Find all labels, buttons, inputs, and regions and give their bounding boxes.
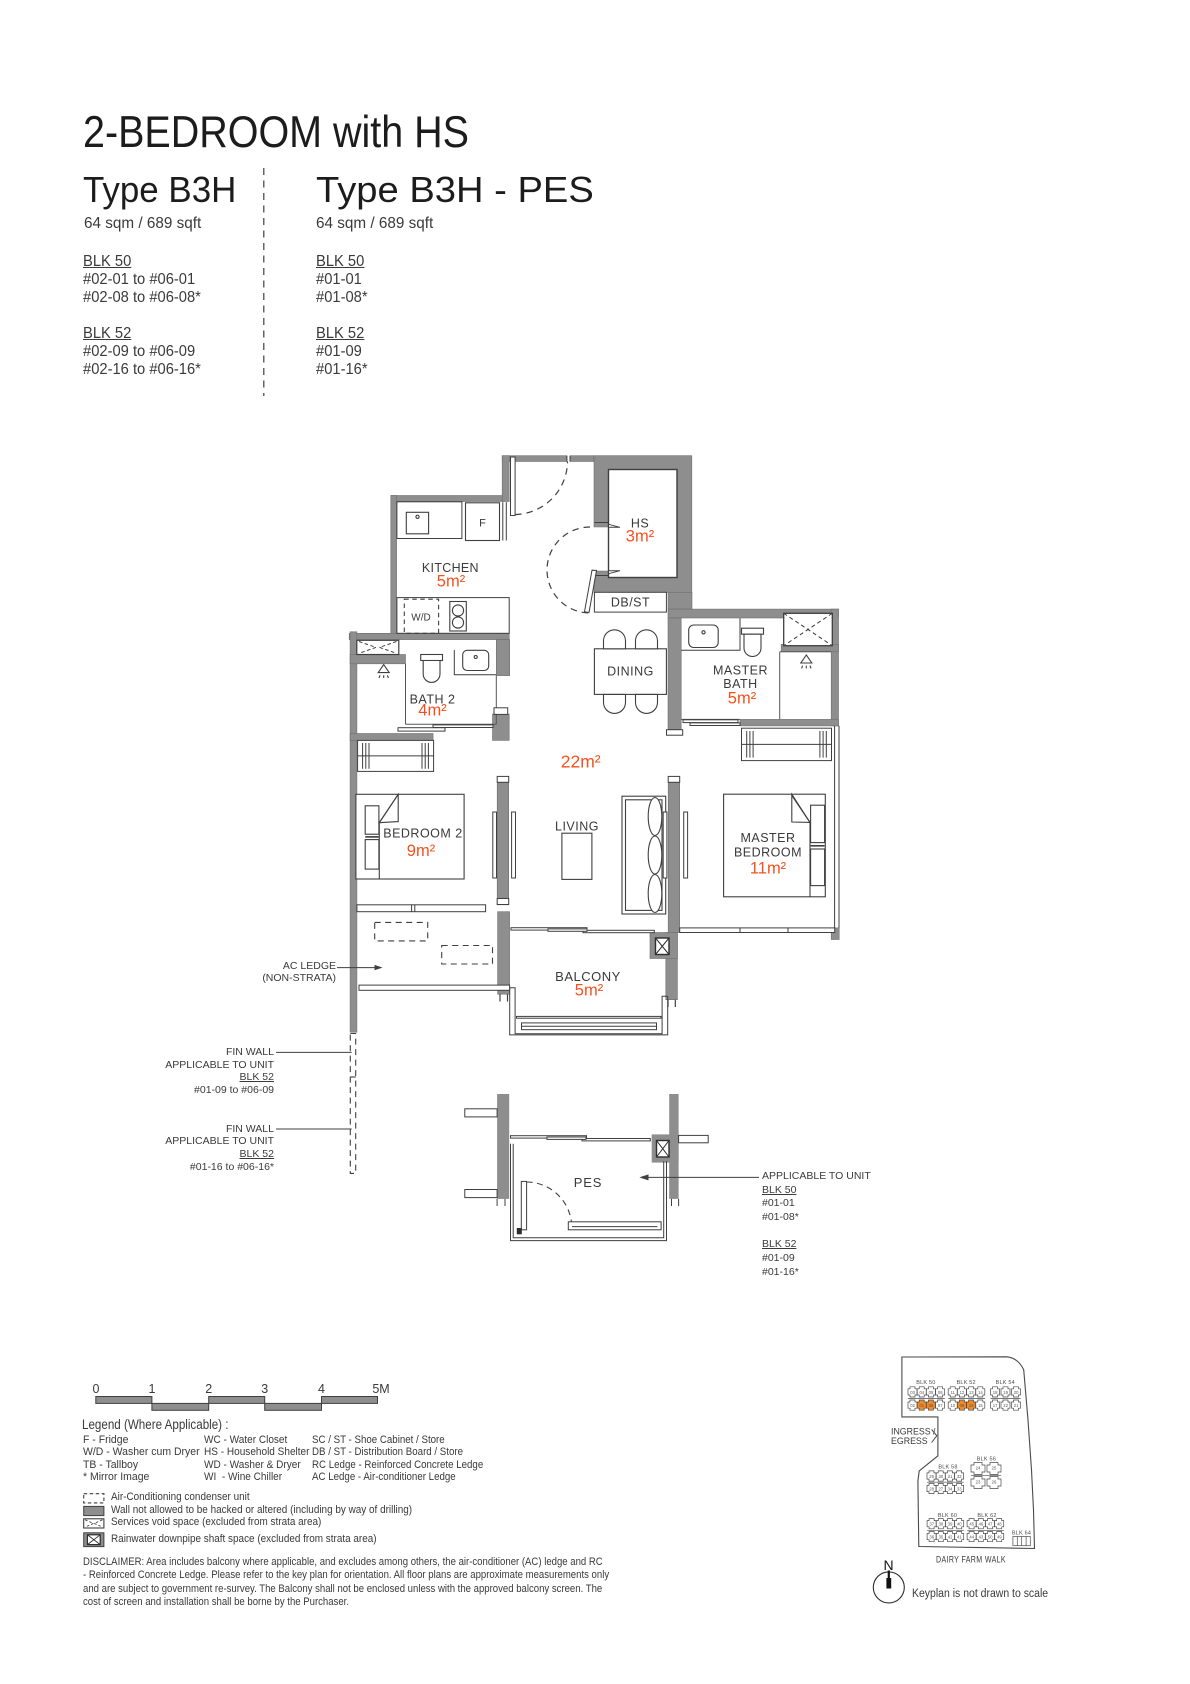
svg-text:3m²: 3m² — [626, 528, 655, 546]
svg-text:BLK 62: BLK 62 — [977, 1513, 996, 1519]
svg-text:BLK 52: BLK 52 — [957, 1380, 976, 1386]
svg-text:14: 14 — [978, 1390, 983, 1395]
svg-text:5m²: 5m² — [728, 690, 757, 708]
svg-text:22m²: 22m² — [561, 752, 601, 772]
svg-text:1: 1 — [149, 1382, 156, 1396]
svg-text:37: 37 — [929, 1522, 934, 1527]
svg-text:5m²: 5m² — [575, 982, 604, 1000]
svg-text:07: 07 — [938, 1403, 943, 1408]
svg-text:5M: 5M — [372, 1382, 389, 1396]
svg-text:15: 15 — [978, 1403, 983, 1408]
svg-text:EGRESS: EGRESS — [891, 1436, 928, 1446]
svg-text:35: 35 — [939, 1535, 944, 1540]
svg-text:LIVING: LIVING — [555, 820, 599, 834]
svg-text:09: 09 — [960, 1403, 965, 1408]
svg-text:2: 2 — [205, 1382, 212, 1396]
svg-text:49: 49 — [997, 1535, 1002, 1540]
svg-text:34: 34 — [948, 1486, 953, 1491]
svg-text:BLK 54: BLK 54 — [996, 1380, 1015, 1386]
svg-text:DINING: DINING — [607, 665, 654, 679]
svg-text:04: 04 — [919, 1390, 924, 1395]
svg-text:18: 18 — [993, 1390, 998, 1395]
svg-text:12: 12 — [960, 1390, 965, 1395]
svg-text:41: 41 — [957, 1535, 962, 1540]
svg-text:BLK 64: BLK 64 — [1012, 1530, 1031, 1536]
svg-text:46: 46 — [979, 1522, 984, 1527]
svg-text:36: 36 — [929, 1535, 934, 1540]
svg-text:5m²: 5m² — [437, 573, 466, 591]
svg-text:0: 0 — [93, 1382, 100, 1396]
svg-text:38: 38 — [939, 1522, 944, 1527]
svg-text:01: 01 — [919, 1403, 924, 1408]
svg-text:MASTER: MASTER — [740, 831, 795, 845]
svg-text:4m²: 4m² — [418, 702, 447, 720]
svg-text:47: 47 — [988, 1522, 993, 1527]
svg-text:05: 05 — [929, 1390, 934, 1395]
svg-text:26: 26 — [992, 1480, 997, 1485]
svg-text:39: 39 — [948, 1522, 953, 1527]
svg-text:02: 02 — [910, 1403, 915, 1408]
svg-text:03: 03 — [910, 1390, 915, 1395]
svg-text:BLK 56: BLK 56 — [977, 1456, 996, 1462]
svg-text:INGRESS /: INGRESS / — [891, 1427, 936, 1437]
svg-text:MASTER: MASTER — [713, 664, 768, 678]
svg-text:3: 3 — [261, 1382, 268, 1396]
svg-text:48: 48 — [997, 1522, 1002, 1527]
svg-text:40: 40 — [957, 1522, 962, 1527]
svg-text:22: 22 — [1003, 1403, 1008, 1408]
svg-text:33: 33 — [957, 1486, 962, 1491]
svg-text:BLK 58: BLK 58 — [938, 1464, 957, 1470]
svg-text:BEDROOM 2: BEDROOM 2 — [383, 827, 463, 841]
svg-text:45: 45 — [969, 1522, 974, 1527]
svg-text:16: 16 — [969, 1403, 974, 1408]
svg-text:42: 42 — [948, 1535, 953, 1540]
svg-text:44: 44 — [969, 1535, 974, 1540]
svg-text:23: 23 — [976, 1480, 981, 1485]
svg-text:N: N — [883, 1557, 893, 1573]
svg-text:9m²: 9m² — [407, 842, 436, 860]
svg-text:BLK 50: BLK 50 — [916, 1380, 935, 1386]
svg-text:4: 4 — [318, 1382, 325, 1396]
svg-text:19: 19 — [1003, 1390, 1008, 1395]
svg-text:PES: PES — [574, 1175, 602, 1190]
svg-text:13: 13 — [969, 1390, 974, 1395]
svg-text:43: 43 — [979, 1535, 984, 1540]
svg-text:32: 32 — [957, 1474, 962, 1479]
svg-text:DB/ST: DB/ST — [611, 596, 650, 610]
svg-text:29: 29 — [929, 1474, 934, 1479]
svg-text:11: 11 — [951, 1390, 956, 1395]
svg-text:DAIRY FARM WALK: DAIRY FARM WALK — [936, 1555, 1006, 1566]
svg-text:50: 50 — [988, 1535, 993, 1540]
svg-text:20: 20 — [1014, 1390, 1019, 1395]
svg-text:F: F — [479, 518, 486, 530]
svg-text:17: 17 — [993, 1403, 998, 1408]
svg-text:06: 06 — [938, 1390, 943, 1395]
svg-text:08: 08 — [929, 1403, 934, 1408]
svg-text:27: 27 — [938, 1486, 943, 1491]
svg-text:25: 25 — [992, 1466, 997, 1471]
svg-text:11m²: 11m² — [750, 860, 787, 878]
svg-text:30: 30 — [938, 1474, 943, 1479]
svg-text:31: 31 — [948, 1474, 953, 1479]
svg-text:21: 21 — [1014, 1403, 1019, 1408]
svg-text:W/D: W/D — [411, 613, 430, 624]
svg-text:BLK 60: BLK 60 — [938, 1513, 957, 1519]
svg-text:28: 28 — [929, 1486, 934, 1491]
svg-text:24: 24 — [976, 1466, 981, 1471]
svg-text:BEDROOM: BEDROOM — [734, 846, 802, 860]
svg-text:10: 10 — [950, 1403, 955, 1408]
